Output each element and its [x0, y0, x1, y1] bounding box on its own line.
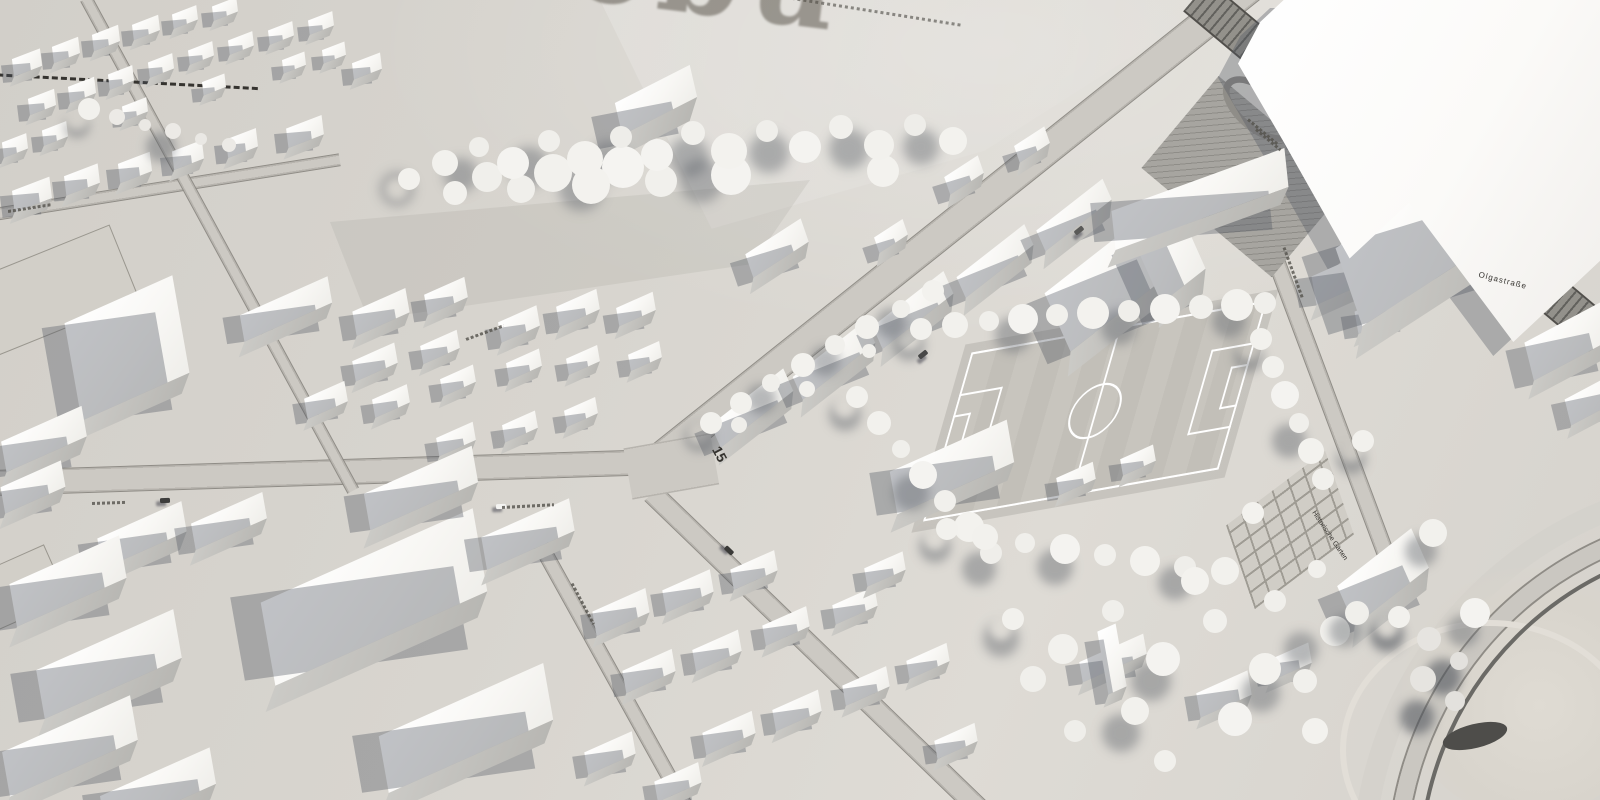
- building: [420, 330, 460, 365]
- trees: [1002, 608, 1024, 630]
- building: [934, 723, 977, 759]
- building: [616, 292, 656, 327]
- building: [622, 649, 675, 693]
- building: [212, 0, 238, 21]
- building: [874, 219, 908, 253]
- trees: [846, 386, 868, 408]
- building: [556, 289, 600, 327]
- building: [692, 630, 741, 672]
- building: [286, 115, 324, 148]
- car: [918, 349, 929, 359]
- building: [228, 31, 254, 55]
- building: [440, 365, 476, 397]
- building: [226, 128, 258, 158]
- building: [906, 643, 949, 679]
- trees: [1388, 606, 1410, 628]
- trees: [910, 318, 932, 340]
- building: [498, 305, 540, 342]
- building: [372, 384, 410, 418]
- building: [502, 411, 538, 443]
- building-slab: [191, 492, 267, 550]
- building-slab: [379, 663, 553, 793]
- trees: [1250, 328, 1272, 350]
- building: [506, 349, 542, 381]
- building: [52, 37, 80, 63]
- building: [42, 121, 68, 146]
- building: [2, 133, 28, 158]
- building: [566, 345, 600, 375]
- city-model-render: ngen: [0, 0, 1600, 800]
- trees: [700, 412, 722, 434]
- building: [148, 53, 174, 78]
- building-slab: [240, 276, 332, 341]
- building: [308, 11, 334, 35]
- building: [702, 711, 755, 755]
- building: [592, 588, 649, 636]
- building: [352, 342, 398, 381]
- building: [172, 140, 204, 170]
- building: [1266, 642, 1312, 681]
- building: [64, 163, 100, 195]
- building: [28, 89, 56, 115]
- building: [564, 397, 598, 427]
- building: [188, 41, 214, 65]
- car: [160, 498, 170, 503]
- building: [108, 65, 134, 90]
- building: [1014, 126, 1050, 162]
- building: [772, 690, 821, 732]
- building: [172, 5, 198, 29]
- building: [730, 550, 777, 590]
- building: [202, 74, 226, 96]
- trees: [78, 98, 100, 120]
- centre-circle: [1061, 379, 1128, 444]
- building: [1196, 670, 1251, 717]
- formal-garden-parterres: [1226, 451, 1354, 609]
- building: [628, 341, 662, 371]
- building-slab: [957, 224, 1034, 298]
- building: [304, 381, 348, 419]
- trees: [936, 518, 958, 540]
- building-slab: [9, 535, 126, 626]
- trees: [398, 168, 420, 190]
- building: [584, 731, 635, 774]
- street-label-marks: [92, 501, 126, 505]
- building: [864, 551, 906, 586]
- building: [118, 152, 152, 184]
- building: [322, 42, 346, 64]
- building: [122, 97, 148, 121]
- building: [352, 52, 382, 79]
- trees: [1352, 430, 1374, 452]
- building-slab: [481, 498, 574, 570]
- building: [268, 21, 294, 45]
- building-slab: [1, 406, 87, 472]
- building: [662, 569, 713, 612]
- building: [132, 15, 160, 40]
- building: [282, 52, 306, 74]
- building: [12, 48, 42, 76]
